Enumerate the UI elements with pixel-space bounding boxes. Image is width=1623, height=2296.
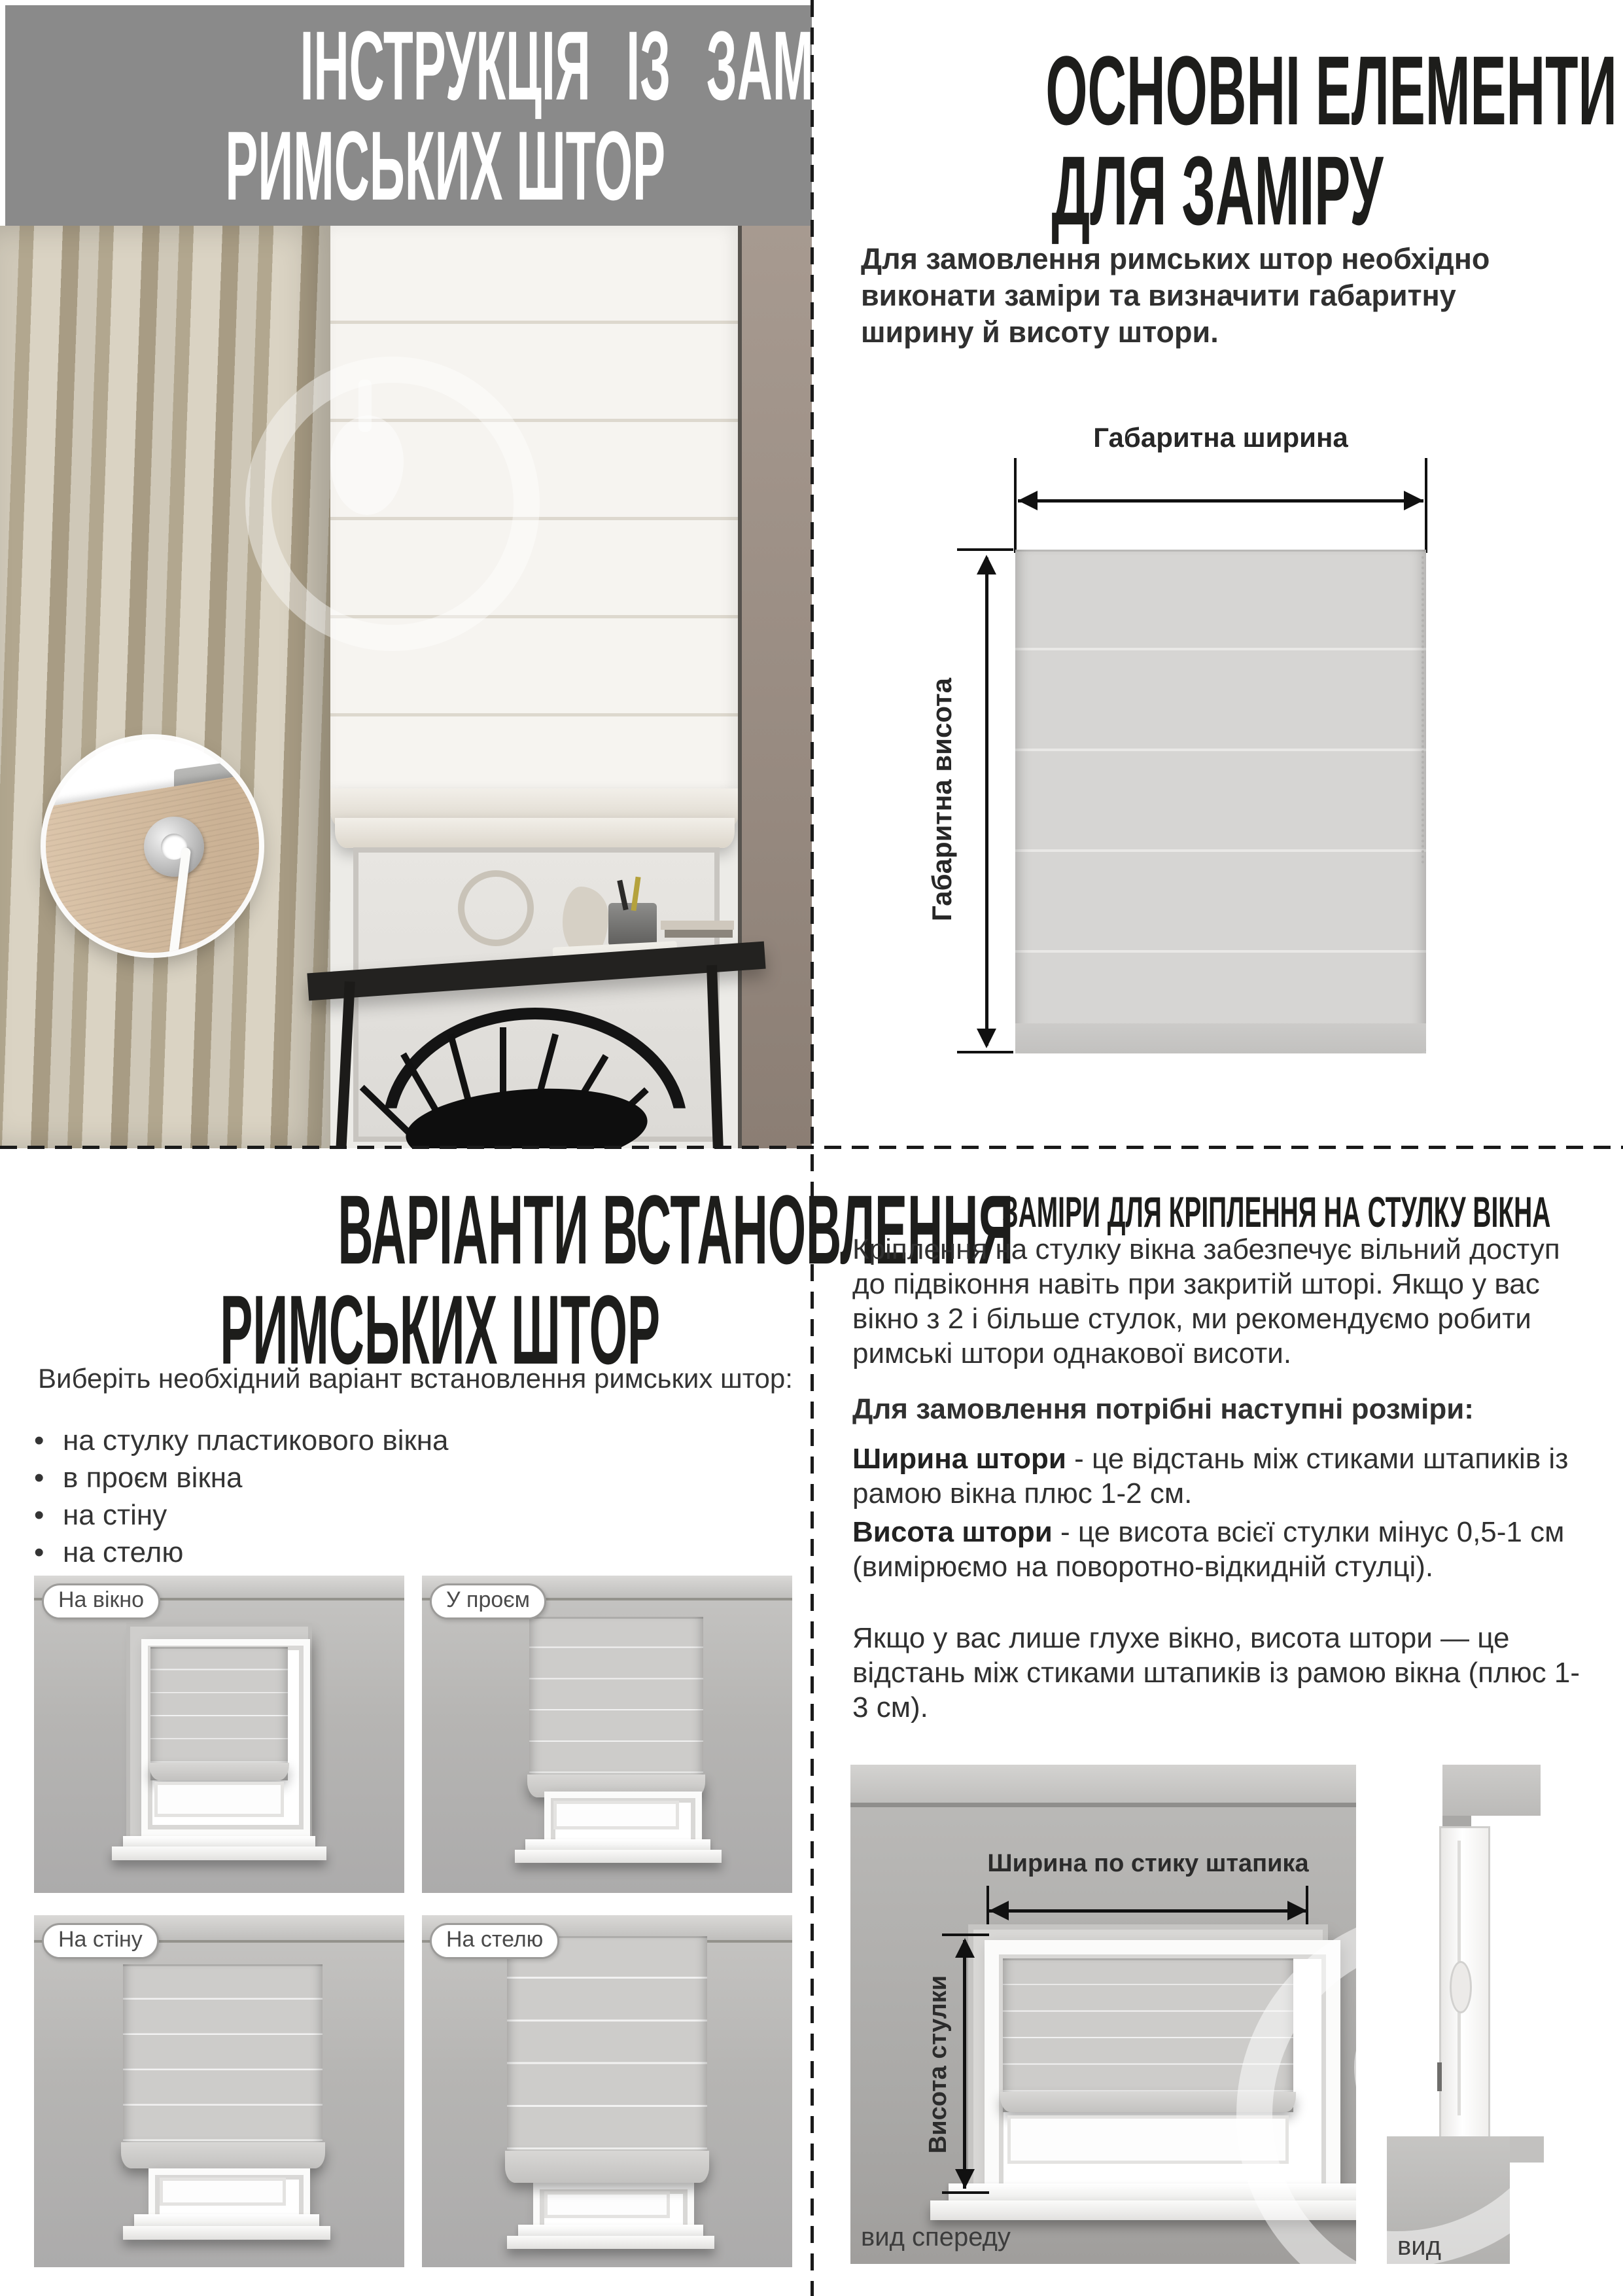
book-1	[661, 921, 734, 930]
blind-bottom-bar	[1015, 1023, 1426, 1053]
variant-label-pill: У проєм	[430, 1583, 546, 1619]
height-tick-bottom	[957, 1051, 1013, 1053]
variant-image-on-wall: На стіну	[34, 1915, 404, 2267]
list-item: на стелю	[29, 1534, 748, 1571]
sill-ledge	[507, 2236, 714, 2249]
book-2	[665, 930, 733, 938]
install-heading: ВАРІАНТИ ВСТАНОВЛЕННЯ РИМСЬКИХ ШТОР	[0, 1180, 812, 1380]
install-options-list: на стулку пластикового вікна в проєм вік…	[29, 1422, 748, 1571]
detail-inset	[46, 739, 259, 953]
sash-width-arrowhead-right-icon	[1287, 1901, 1307, 1920]
variant-label-pill: На вікно	[42, 1583, 160, 1619]
roman-blind	[150, 1647, 287, 1780]
watermark-logo-icon	[245, 357, 540, 651]
height-dimension-arrow	[985, 557, 988, 1046]
section-sash-measure: ЗАМІРИ ДЛЯ КРІПЛЕННЯ НА СТУЛКУ ВІКНА Крі…	[812, 1148, 1623, 2296]
variant-label-pill: На стіну	[42, 1923, 159, 1959]
side-view-caption: вид збоку	[1397, 2232, 1510, 2264]
variant-label-pill: На стелю	[430, 1923, 559, 1959]
overall-width-label: Габаритна ширина	[1024, 422, 1417, 453]
install-heading-line-1: ВАРІАНТИ ВСТАНОВЛЕННЯ	[0, 1180, 812, 1280]
sill-ledge	[515, 1850, 722, 1863]
sash-paragraph-2: Якщо у вас лише глухе вікно, висота штор…	[852, 1621, 1585, 1725]
blind-fold-2	[335, 818, 735, 848]
front-view-diagram: Ширина по стику штапика Висота стулки ви…	[850, 1765, 1356, 2264]
watermark-stem	[358, 380, 372, 432]
ceiling-profile	[1442, 1765, 1541, 1816]
height-term: Висота штори	[852, 1516, 1053, 1548]
height-arrowhead-bottom-icon	[977, 1029, 996, 1048]
section-title-photo: ІНСТРУКЦІЯ ІЗ ЗАМІРУ РИМСЬКИХ ШТОР	[0, 0, 812, 1148]
glass	[553, 1801, 679, 1829]
list-item: на стулку пластикового вікна	[29, 1422, 748, 1459]
sash-paragraph-1: Кріплення на стулку вікна забезпечує віл…	[852, 1232, 1585, 1371]
title-line-1: ІНСТРУКЦІЯ ІЗ ЗАМІРУ	[5, 16, 812, 116]
curtain	[0, 226, 330, 1148]
page-title: ІНСТРУКЦІЯ ІЗ ЗАМІРУ РИМСЬКИХ ШТОР	[5, 5, 812, 226]
sash-heading: ЗАМІРИ ДЛЯ КРІПЛЕННЯ НА СТУЛКУ ВІКНА	[812, 1189, 1623, 1235]
roman-blind	[507, 1936, 707, 2183]
glass	[544, 2191, 670, 2217]
sash-height-arrow	[963, 1940, 966, 2189]
elements-heading-line-1: ОСНОВНІ ЕЛЕМЕНТИ	[812, 41, 1623, 141]
side-wall	[742, 226, 812, 1148]
roman-blind	[529, 1617, 703, 1797]
sash-width-arrowhead-left-icon	[989, 1901, 1009, 1920]
glass	[160, 2178, 285, 2206]
roman-blind-photo	[0, 226, 812, 1148]
instruction-poster: ІНСТРУКЦІЯ ІЗ ЗАМІРУ РИМСЬКИХ ШТОР	[0, 0, 1623, 2296]
blind-chain-icon	[1422, 556, 1424, 864]
width-tick-left	[1014, 458, 1017, 553]
wall-below-window: вид збоку	[1387, 2136, 1510, 2264]
sash-height-label: Висота стулки	[924, 1927, 953, 2202]
height-arrowhead-top-icon	[977, 555, 996, 574]
sash-height-arrowhead-top-icon	[955, 1938, 975, 1958]
molding-line	[850, 1803, 1356, 1807]
section-main-elements: ОСНОВНІ ЕЛЕМЕНТИ ДЛЯ ЗАМІРУ Для замовлен…	[812, 0, 1623, 1148]
roman-blind	[123, 1964, 323, 2168]
crown-molding	[850, 1765, 1356, 1803]
height-tick-top	[957, 548, 1013, 551]
list-item: в проєм вікна	[29, 1459, 748, 1496]
sill	[518, 2225, 703, 2235]
sash-width-label: Ширина по стику штапика	[952, 1850, 1344, 1878]
sill	[123, 1836, 315, 1846]
middle-divider	[0, 1146, 1623, 1149]
width-tick-right	[1425, 458, 1427, 553]
sash-height-arrowhead-bottom-icon	[955, 2169, 975, 2189]
glass	[154, 1782, 284, 1816]
sill-ledge	[123, 2226, 330, 2240]
sash-height-definition: Висота штори - це висота всієї стулки мі…	[852, 1515, 1585, 1584]
section-install-variants: ВАРІАНТИ ВСТАНОВЛЕННЯ РИМСЬКИХ ШТОР Вибе…	[0, 1148, 812, 2296]
width-term: Ширина штори	[852, 1443, 1066, 1475]
sill-ledge	[112, 1846, 326, 1860]
side-view-diagram: вид збоку	[1387, 1765, 1544, 2266]
handle	[1437, 2062, 1442, 2091]
variant-image-on-window: На вікно	[34, 1576, 404, 1893]
sash-lead: Для замовлення потрібні наступні розміри…	[852, 1392, 1585, 1426]
install-intro: Виберіть необхідний варіант встановлення…	[38, 1363, 793, 1394]
chain-icon	[1450, 1961, 1472, 2013]
sill	[134, 2214, 319, 2225]
sill	[525, 1839, 710, 1850]
width-dimension-arrow	[1018, 499, 1423, 503]
mount-bracket	[1442, 1816, 1471, 1826]
sill-profile	[1510, 2136, 1544, 2163]
sash-width-definition: Ширина штори - це відстань між стиками ш…	[852, 1441, 1585, 1511]
diagram-blind	[1015, 550, 1426, 1053]
elements-heading-line-2: ДЛЯ ЗАМІРУ	[812, 141, 1623, 241]
sash-width-arrow	[989, 1909, 1307, 1913]
variant-image-in-opening: У проєм	[422, 1576, 792, 1893]
front-view-caption: вид спереду	[861, 2223, 1011, 2252]
title-line-2: РИМСЬКИХ ШТОР	[5, 116, 812, 216]
elements-heading: ОСНОВНІ ЕЛЕМЕНТИ ДЛЯ ЗАМІРУ	[812, 41, 1623, 241]
variant-image-on-ceiling: На стелю	[422, 1915, 792, 2267]
overall-height-label: Габаритна висота	[926, 616, 956, 983]
width-arrowhead-right-icon	[1404, 491, 1423, 510]
elements-intro: Для замовлення римських штор необхідно в…	[861, 241, 1554, 351]
decor-ring-sculpture	[458, 870, 534, 946]
width-arrowhead-left-icon	[1018, 491, 1038, 510]
list-item: на стіну	[29, 1496, 748, 1534]
